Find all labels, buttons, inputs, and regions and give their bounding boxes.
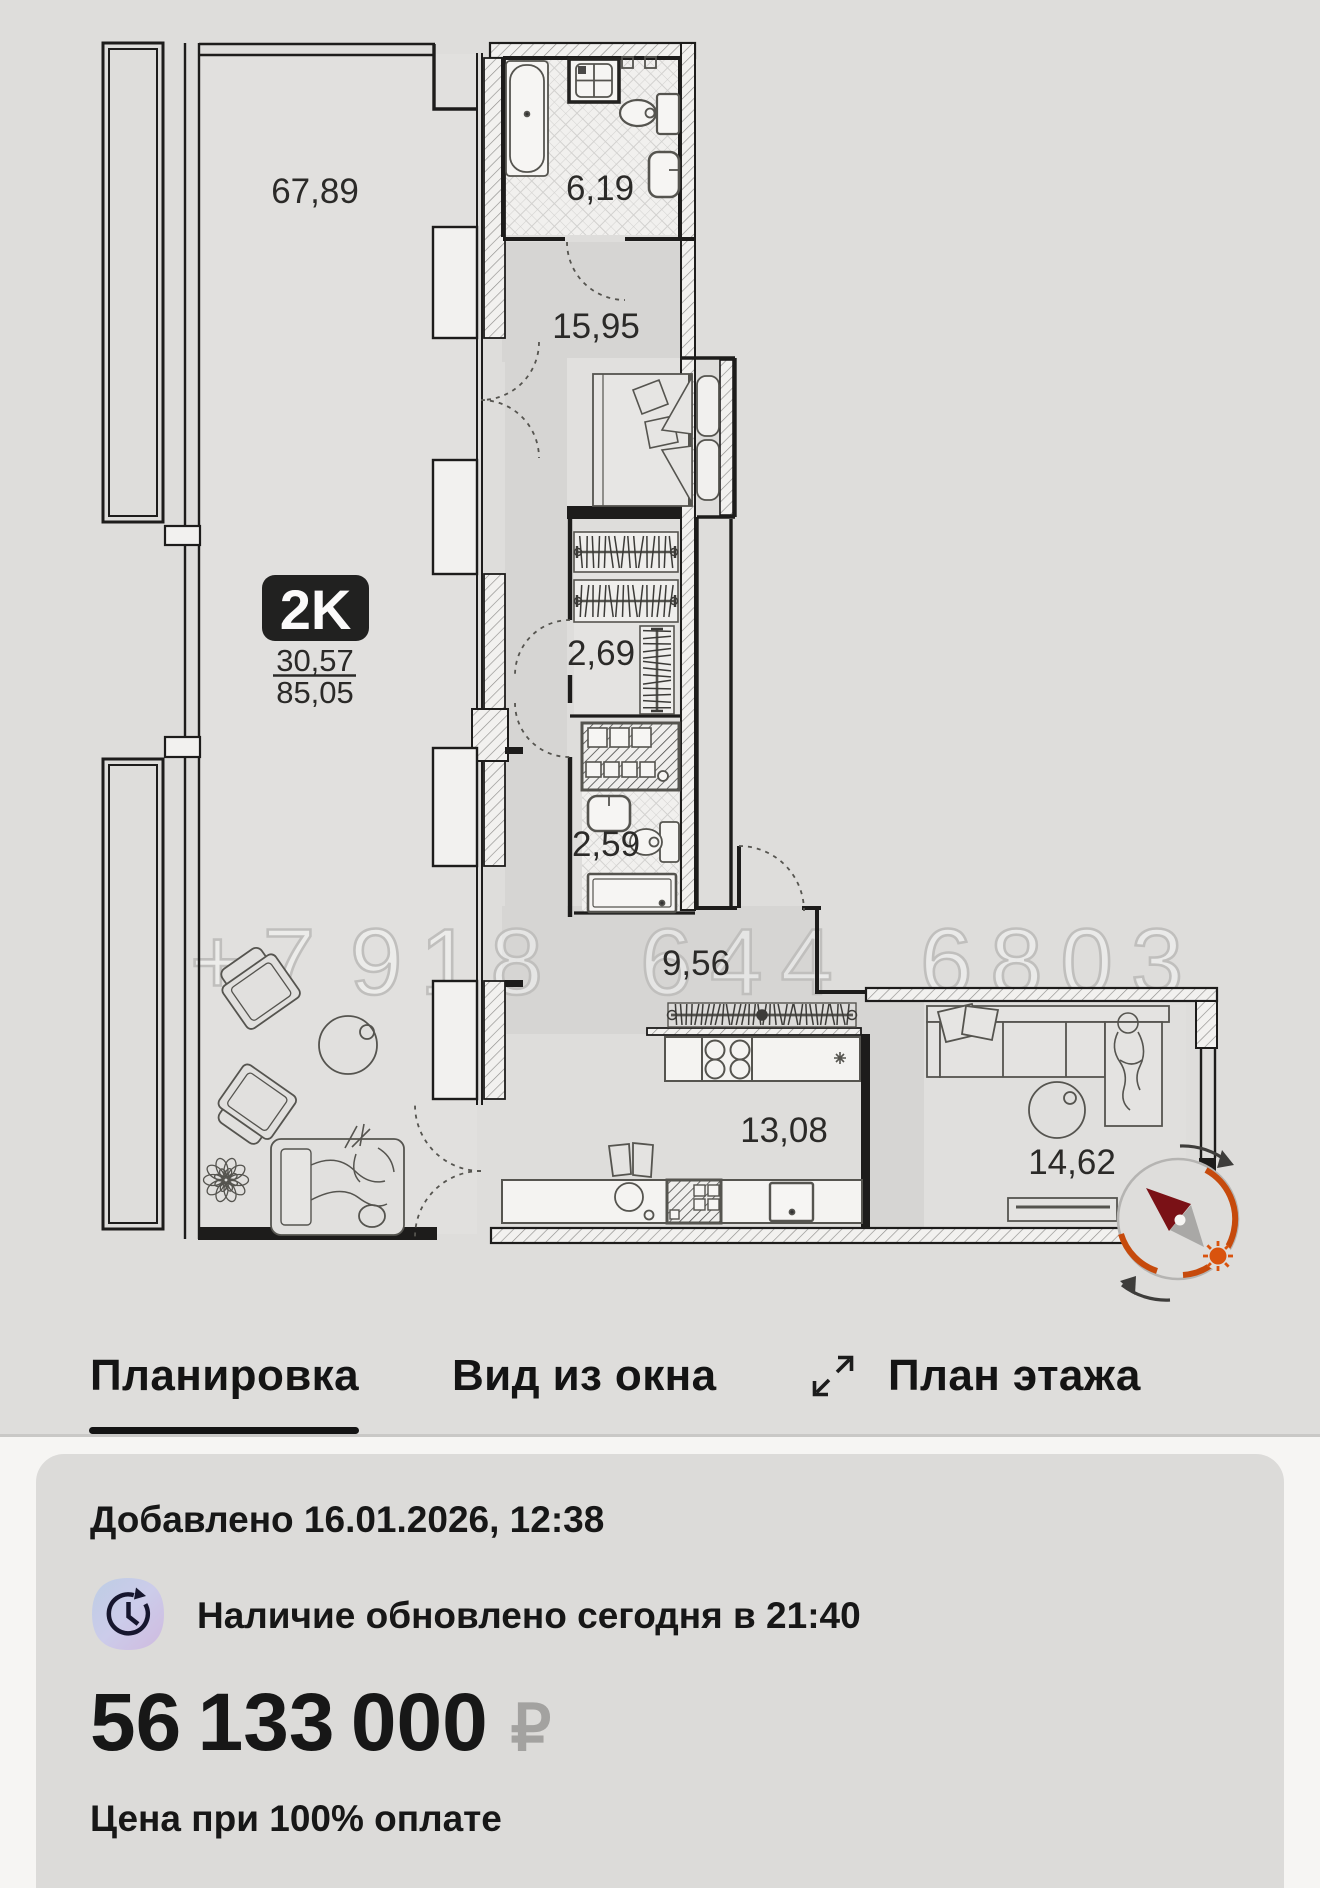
svg-text:13,08: 13,08 <box>740 1111 828 1150</box>
svg-text:9,56: 9,56 <box>662 944 730 983</box>
svg-text:6,19: 6,19 <box>566 169 634 208</box>
svg-text:67,89: 67,89 <box>271 172 359 211</box>
svg-text:2,69: 2,69 <box>567 634 635 673</box>
svg-text:2K: 2K <box>280 578 352 641</box>
svg-text:85,05: 85,05 <box>276 675 354 710</box>
svg-text:14,62: 14,62 <box>1028 1143 1116 1182</box>
svg-text:15,95: 15,95 <box>552 307 640 346</box>
svg-text:30,57: 30,57 <box>276 643 354 678</box>
svg-text:2,59: 2,59 <box>572 825 640 864</box>
